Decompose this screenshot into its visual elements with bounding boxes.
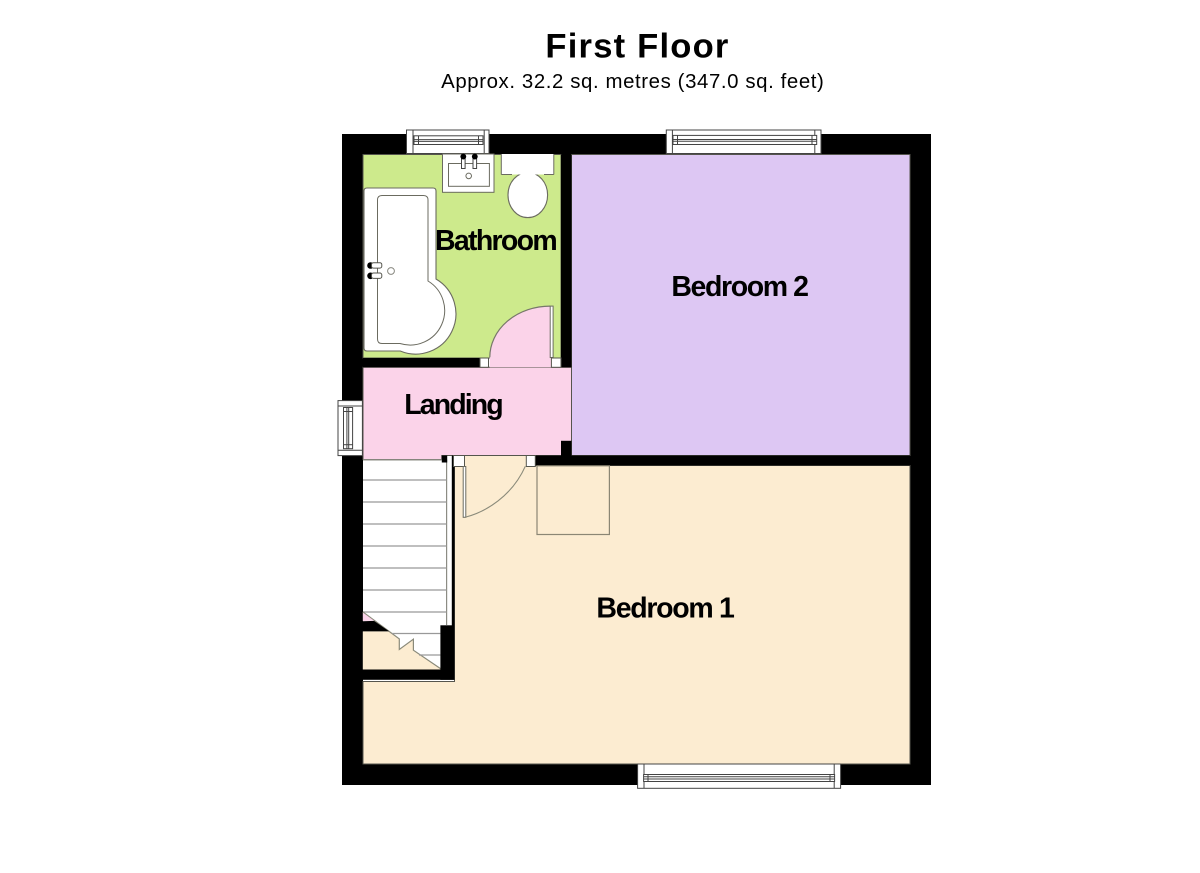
svg-text:Bathroom: Bathroom <box>435 225 556 257</box>
svg-text:Bedroom 1: Bedroom 1 <box>596 593 735 625</box>
svg-text:First Floor: First Floor <box>545 28 729 66</box>
svg-text:Bedroom 2: Bedroom 2 <box>671 271 808 303</box>
svg-text:Approx. 32.2 sq. metres (347.0: Approx. 32.2 sq. metres (347.0 sq. feet) <box>441 71 824 93</box>
svg-text:Landing: Landing <box>404 389 502 421</box>
